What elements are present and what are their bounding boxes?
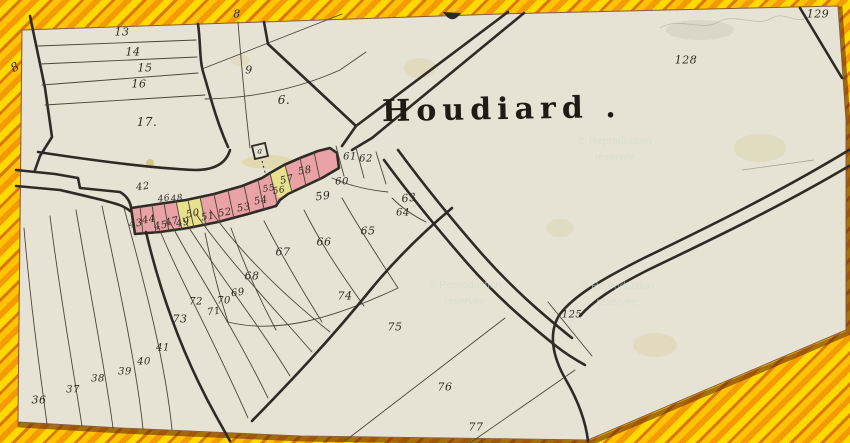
paper-stains-segment (633, 333, 677, 357)
annex-building-square (252, 143, 268, 159)
paper-stains-segment (734, 134, 786, 162)
paper-stains-segment (546, 219, 574, 237)
cadastral-map: Houdiard . 81314151617.896.1291284243444… (0, 0, 850, 443)
map-canvas (0, 0, 850, 443)
map-title: Houdiard . (382, 90, 622, 129)
paper-stains-segment (230, 54, 250, 66)
